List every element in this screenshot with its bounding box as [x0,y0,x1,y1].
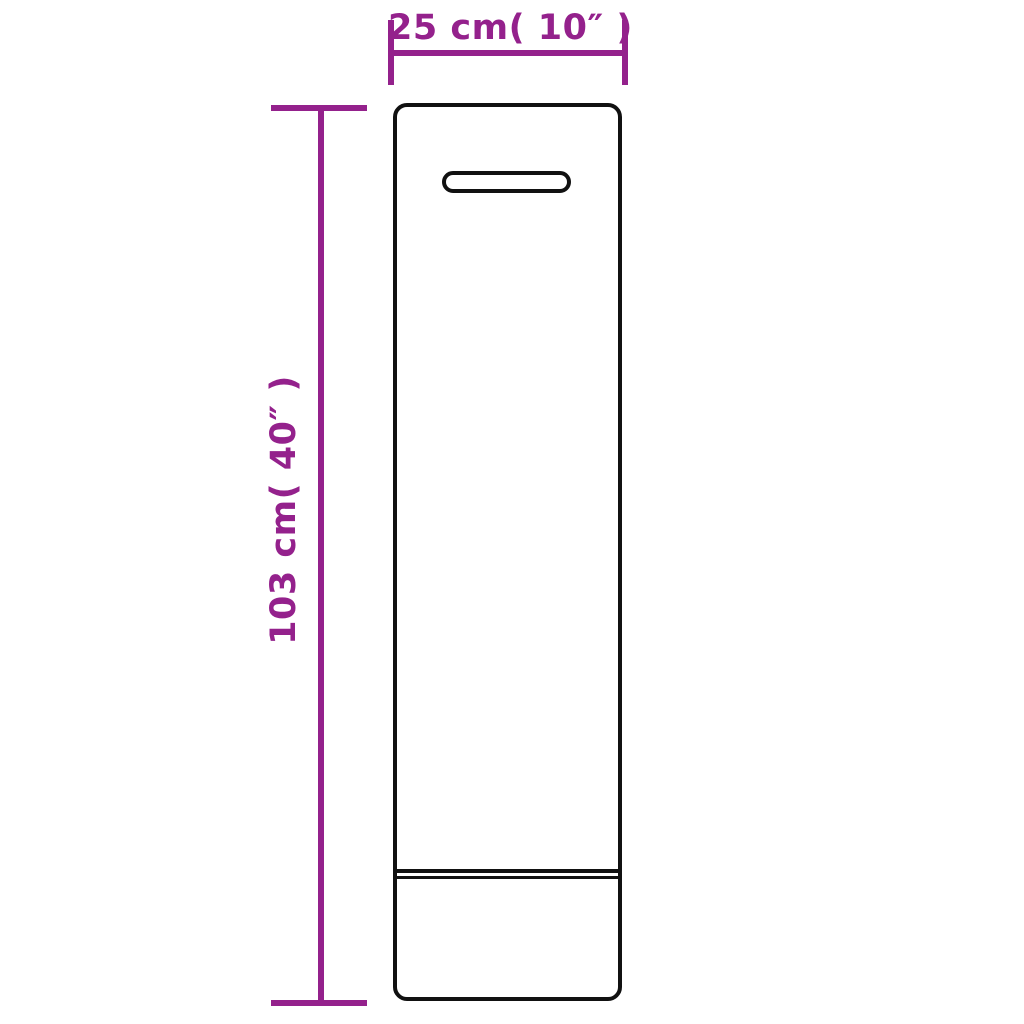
height-dimension-line [318,105,324,1006]
height-dimension-label: 103 cm( 40″ ) [264,375,304,645]
width-dimension-line [388,50,628,56]
bottom-seam-line-1 [396,869,619,873]
width-dimension-cap-left [388,20,394,85]
handle-slot [442,171,571,193]
bottom-seam-line-2 [396,876,619,879]
height-dimension-cap-top [271,105,367,111]
height-dimension-cap-bottom [271,1000,367,1006]
dimension-diagram: 25 cm( 10″ ) 103 cm( 40″ ) [0,0,1024,1024]
width-dimension-label: 25 cm( 10″ ) [388,8,628,48]
width-dimension-cap-right [622,20,628,85]
product-outline [393,103,622,1001]
